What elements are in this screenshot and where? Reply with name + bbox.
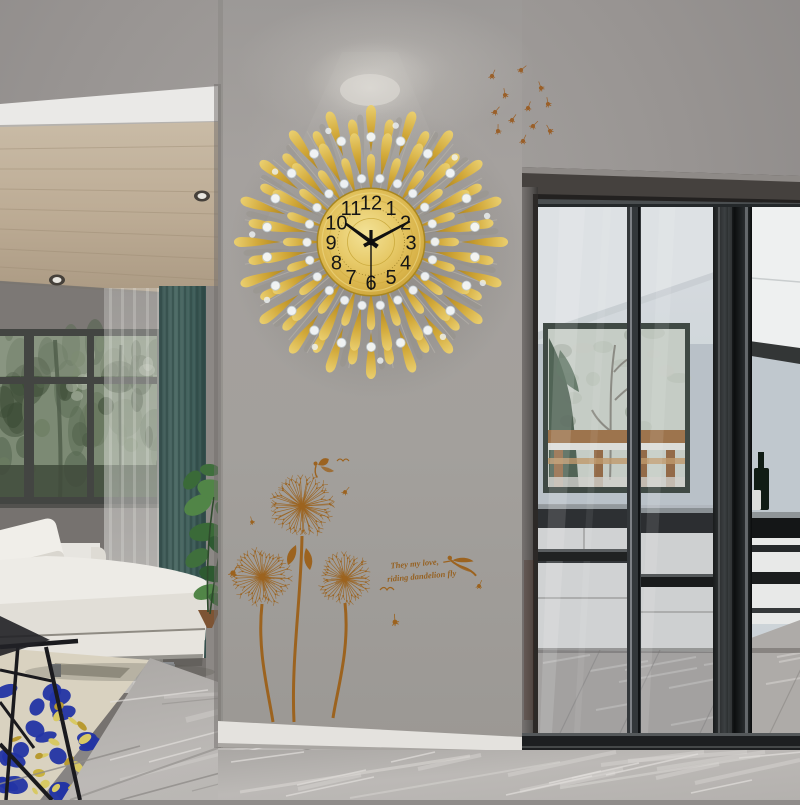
- svg-text:12: 12: [360, 193, 382, 215]
- svg-text:8: 8: [331, 253, 342, 275]
- svg-text:4: 4: [400, 253, 411, 275]
- svg-text:1: 1: [385, 198, 396, 220]
- svg-text:9: 9: [325, 233, 336, 255]
- svg-text:5: 5: [385, 267, 396, 289]
- svg-text:7: 7: [345, 267, 356, 289]
- svg-text:11: 11: [341, 198, 362, 220]
- svg-text:3: 3: [405, 233, 416, 255]
